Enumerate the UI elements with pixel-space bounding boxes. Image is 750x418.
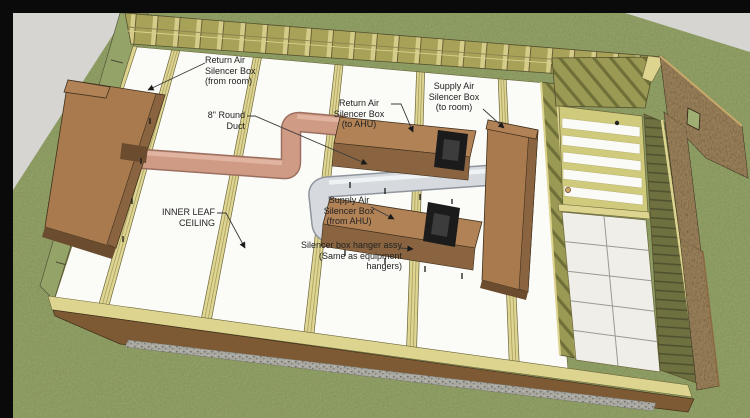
letterbox-left [0,0,13,418]
letterbox-top [0,0,750,13]
right-room-ceiling [552,57,656,108]
supply-silencer-box-to-room [480,120,538,300]
scene-3d-model [0,0,750,418]
model-viewport[interactable]: Return Air Silencer Box (from room) 8" R… [0,0,750,418]
fastener-dot [615,121,619,125]
wood-peg [565,187,570,192]
